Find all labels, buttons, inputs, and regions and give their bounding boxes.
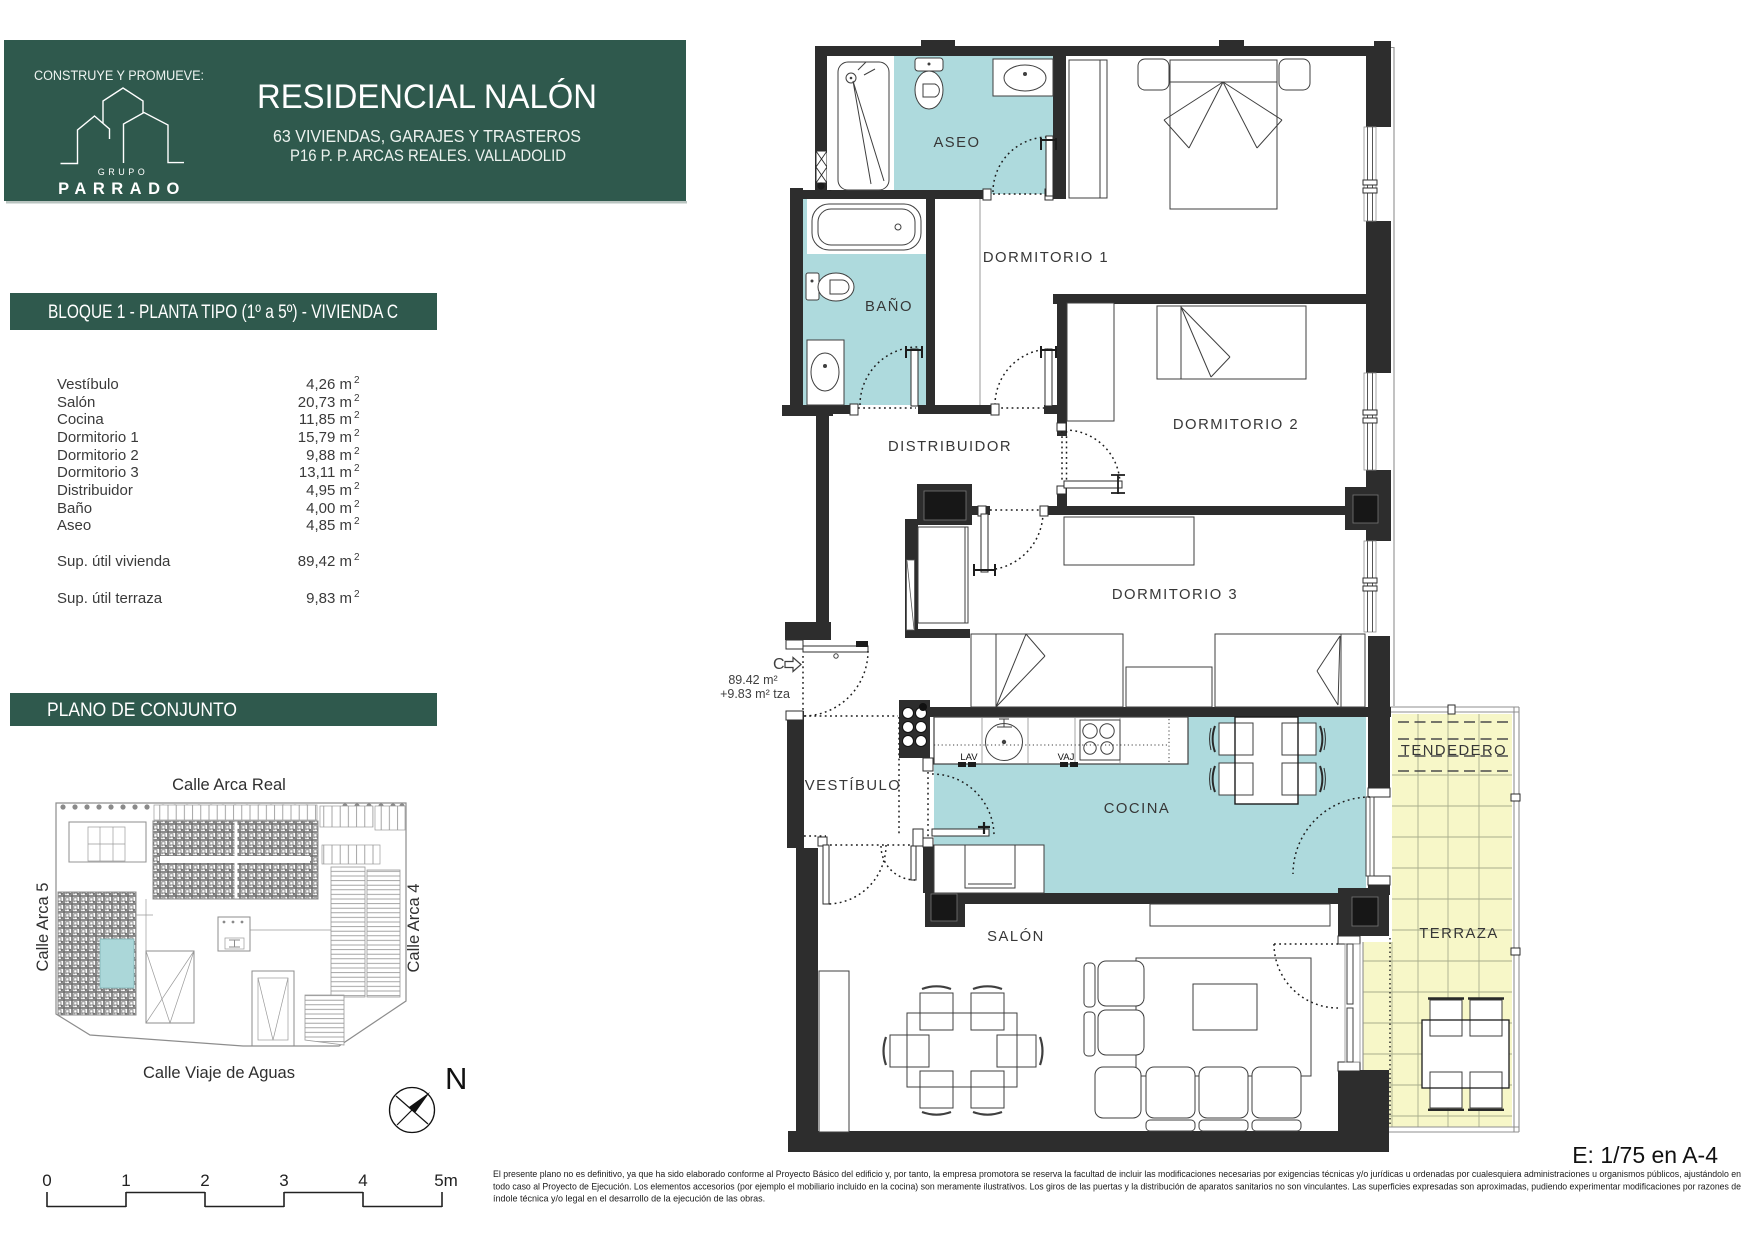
svg-text:4,95 m: 4,95 m [306, 482, 352, 499]
svg-text:11,85 m: 11,85 m [299, 411, 352, 428]
svg-text:Calle Arca Real: Calle Arca Real [172, 776, 286, 794]
svg-text:9,83 m: 9,83 m [306, 590, 352, 607]
svg-text:TENDEDERO: TENDEDERO [1401, 743, 1507, 759]
svg-text:todo caso al Proyecto de Ejecu: todo caso al Proyecto de Ejecución. Los … [493, 1182, 1741, 1192]
svg-text:N: N [445, 1061, 467, 1096]
svg-text:Sup. útil vivienda: Sup. útil vivienda [57, 553, 171, 570]
svg-text:2: 2 [354, 446, 360, 457]
svg-text:Calle Viaje de Aguas: Calle Viaje de Aguas [143, 1064, 295, 1082]
svg-text:E: 1/75 en A-4: E: 1/75 en A-4 [1572, 1142, 1718, 1168]
svg-text:Distribuidor: Distribuidor [57, 482, 133, 499]
svg-text:Vestíbulo: Vestíbulo [57, 376, 119, 393]
svg-text:2: 2 [200, 1171, 209, 1190]
svg-text:20,73 m: 20,73 m [298, 394, 352, 411]
svg-text:4,00 m: 4,00 m [306, 500, 352, 517]
svg-text:9,88 m: 9,88 m [306, 447, 352, 464]
svg-text:SALÓN: SALÓN [987, 928, 1045, 945]
svg-text:63 VIVIENDAS, GARAJES Y TRASTE: 63 VIVIENDAS, GARAJES Y TRASTEROS [273, 126, 581, 146]
svg-text:2: 2 [354, 375, 360, 386]
svg-text:Dormitorio 2: Dormitorio 2 [57, 447, 139, 464]
svg-text:5m: 5m [434, 1171, 458, 1190]
svg-text:Calle Arca 5: Calle Arca 5 [34, 883, 52, 972]
svg-text:índole técnica y/o legal en el: índole técnica y/o legal en el desarroll… [493, 1194, 765, 1204]
svg-text:LAV: LAV [960, 752, 978, 763]
svg-text:2: 2 [354, 463, 360, 474]
svg-text:DORMITORIO 1: DORMITORIO 1 [983, 250, 1109, 266]
svg-text:VESTÍBULO: VESTÍBULO [805, 777, 902, 794]
svg-text:RESIDENCIAL NALÓN: RESIDENCIAL NALÓN [257, 78, 597, 116]
svg-text:2: 2 [354, 552, 360, 563]
svg-text:DORMITORIO 2: DORMITORIO 2 [1173, 417, 1299, 433]
svg-text:DISTRIBUIDOR: DISTRIBUIDOR [888, 439, 1012, 455]
svg-text:2: 2 [354, 589, 360, 600]
svg-text:89,42 m: 89,42 m [298, 553, 352, 570]
svg-text:2: 2 [354, 499, 360, 510]
svg-text:GRUPO: GRUPO [98, 167, 149, 177]
svg-text:13,11 m: 13,11 m [299, 464, 352, 481]
svg-text:2: 2 [354, 393, 360, 404]
svg-text:3: 3 [279, 1171, 288, 1190]
svg-text:15,79 m: 15,79 m [298, 429, 352, 446]
svg-text:2: 2 [354, 410, 360, 421]
svg-text:PLANO DE CONJUNTO: PLANO DE CONJUNTO [47, 700, 237, 721]
svg-text:P16 P. P. ARCAS REALES. VALLAD: P16 P. P. ARCAS REALES. VALLADOLID [290, 147, 566, 165]
svg-text:VAJ: VAJ [1058, 752, 1075, 763]
svg-text:0: 0 [42, 1171, 51, 1190]
svg-text:C: C [773, 656, 785, 673]
svg-text:ASEO: ASEO [933, 135, 980, 151]
svg-text:2: 2 [354, 516, 360, 527]
svg-text:BAÑO: BAÑO [865, 298, 913, 315]
svg-text:1: 1 [121, 1171, 130, 1190]
svg-text:4,26 m: 4,26 m [306, 376, 352, 393]
svg-text:El presente plano no es defini: El presente plano no es definitivo, ya q… [493, 1169, 1741, 1179]
svg-text:Dormitorio 3: Dormitorio 3 [57, 464, 139, 481]
svg-text:DORMITORIO 3: DORMITORIO 3 [1112, 587, 1238, 603]
svg-text:Cocina: Cocina [57, 411, 104, 428]
svg-text:+9.83 m² tza: +9.83 m² tza [720, 687, 790, 701]
svg-text:4,85 m: 4,85 m [306, 517, 352, 534]
svg-text:CONSTRUYE Y PROMUEVE:: CONSTRUYE Y PROMUEVE: [34, 68, 204, 83]
svg-text:TERRAZA: TERRAZA [1419, 926, 1499, 942]
svg-text:BLOQUE 1 - PLANTA TIPO (1º a 5: BLOQUE 1 - PLANTA TIPO (1º a 5º) - VIVIE… [48, 301, 398, 323]
svg-text:Calle Arca 4: Calle Arca 4 [405, 884, 423, 973]
svg-text:89.42 m²: 89.42 m² [728, 673, 777, 687]
svg-text:Salón: Salón [57, 394, 95, 411]
svg-text:Dormitorio 1: Dormitorio 1 [57, 429, 139, 446]
svg-text:4: 4 [358, 1171, 367, 1190]
svg-text:2: 2 [354, 481, 360, 492]
svg-text:PARRADO: PARRADO [58, 180, 186, 198]
svg-text:Aseo: Aseo [57, 517, 91, 534]
svg-text:COCINA: COCINA [1104, 801, 1171, 817]
svg-text:Baño: Baño [57, 500, 92, 517]
svg-text:2: 2 [354, 428, 360, 439]
svg-text:Sup. útil terraza: Sup. útil terraza [57, 590, 163, 607]
